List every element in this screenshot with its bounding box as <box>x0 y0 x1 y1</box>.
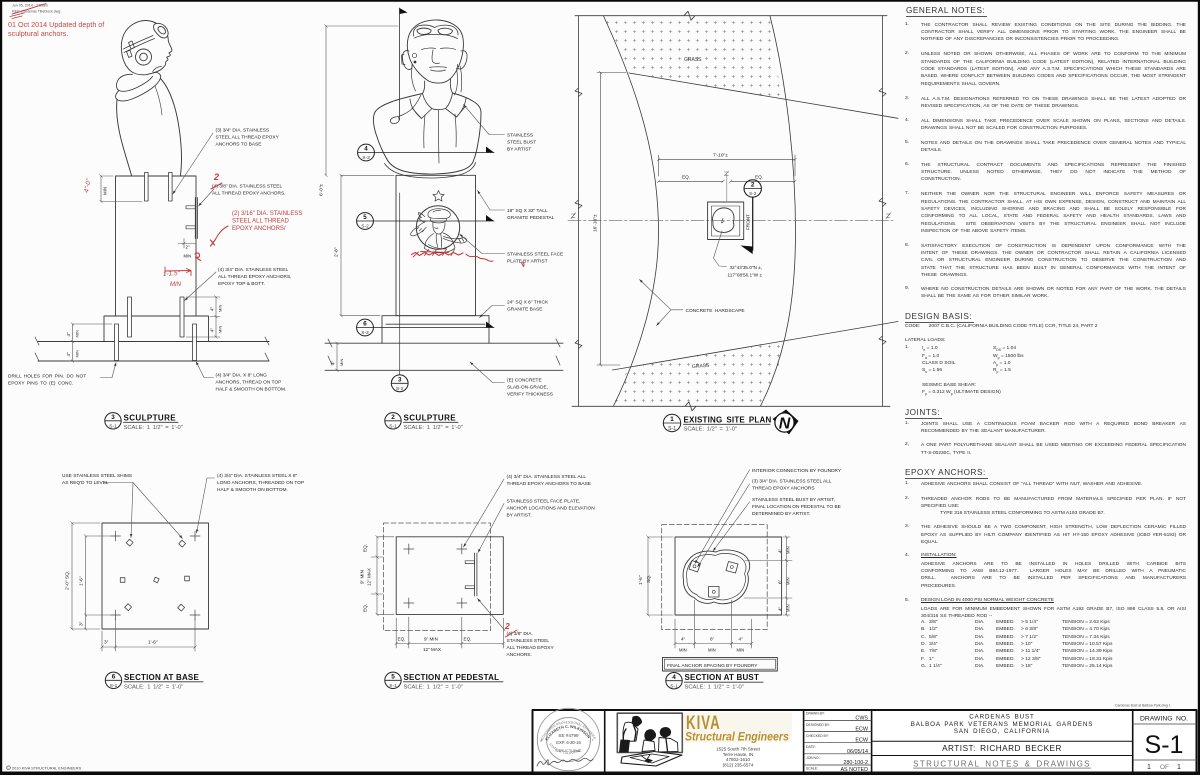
svg-text:EQ.: EQ. <box>755 175 763 180</box>
svg-text:HALF & SMOOTH ON BOTTOM.: HALF & SMOOTH ON BOTTOM. <box>216 386 287 392</box>
svg-text:ANCHOR LOCATIONS AND ELEVATION: ANCHOR LOCATIONS AND ELEVATION <box>507 505 596 511</box>
svg-text:4": 4" <box>66 352 71 356</box>
svg-text:4": 4" <box>681 637 686 642</box>
svg-text:VERIFY THICKNESS: VERIFY THICKNESS <box>507 391 553 397</box>
svg-text:(E) CONCRETE: (E) CONCRETE <box>507 377 542 383</box>
svg-text:OF: OF <box>1160 764 1169 771</box>
svg-text:2010 KIVA STRUCTURAL ENGINE: 2010 KIVA STRUCTURAL ENGINEERS <box>12 765 82 770</box>
svg-text:18" SQ X 32" TALL: 18" SQ X 32" TALL <box>507 208 548 214</box>
svg-text:4: 4 <box>364 146 368 153</box>
svg-text:6": 6" <box>778 579 783 584</box>
svg-text:STRUCTURAL NOTES & DRAWINGS: STRUCTURAL NOTES & DRAWINGS <box>913 760 1091 769</box>
svg-text:sculptural anchors.: sculptural anchors. <box>8 29 68 38</box>
svg-text:MIN: MIN <box>786 577 791 585</box>
svg-text:S-1: S-1 <box>389 424 397 430</box>
svg-text:4": 4" <box>331 361 336 365</box>
svg-text:DESIGNED BY:: DESIGNED BY: <box>806 723 830 727</box>
svg-text:AS NOTED: AS NOTED <box>840 767 868 773</box>
svg-text:GRASS: GRASS <box>684 57 702 63</box>
svg-text:STAINLESS STEEL BUST BY ARTIST: STAINLESS STEEL BUST BY ARTIST, <box>752 497 835 503</box>
svg-text:S-2: S-2 <box>361 224 369 230</box>
svg-text:S-1: S-1 <box>668 426 676 432</box>
svg-text:ANCHORS TO BASE: ANCHORS TO BASE <box>216 142 262 148</box>
svg-text:6'-0"±: 6'-0"± <box>319 183 325 196</box>
svg-text:S-1: S-1 <box>109 424 117 430</box>
svg-text:EPOXY TOP & BOTT.: EPOXY TOP & BOTT. <box>218 281 265 287</box>
svg-text:S-2: S-2 <box>362 155 370 161</box>
svg-text:(4) 3/4" DIA. STAINLESS STEEL: (4) 3/4" DIA. STAINLESS STEEL X 8" <box>217 473 297 479</box>
svg-text:MIN: MIN <box>339 359 344 366</box>
svg-text:INTERIOR CONNECTION BY FOUNDRY: INTERIOR CONNECTION BY FOUNDRY <box>752 468 842 474</box>
svg-text:BY ARTIST.: BY ARTIST. <box>507 512 532 518</box>
svg-text:7'-10"±: 7'-10"± <box>713 153 728 159</box>
svg-text:S-2: S-2 <box>396 386 404 392</box>
svg-text:STAINLESS: STAINLESS <box>507 132 533 138</box>
svg-text:4": 4" <box>210 307 215 311</box>
svg-text:MIN: MIN <box>103 187 108 195</box>
svg-text:USE STAINLESS STEEL SHIMS: USE STAINLESS STEEL SHIMS <box>62 473 132 479</box>
svg-text:4": 4" <box>778 548 783 553</box>
svg-text:CWS: CWS <box>855 715 868 721</box>
svg-text:9" MIN: 9" MIN <box>360 570 365 584</box>
svg-text:BALBOA PARK VETERANS MEMORI: BALBOA PARK VETERANS MEMORIAL GARDENS <box>911 721 1094 728</box>
svg-text:9" MIN: 9" MIN <box>424 637 438 642</box>
svg-text:(4) 3/4" DIA. X 8" LONG: (4) 3/4" DIA. X 8" LONG <box>216 372 268 378</box>
svg-text:SECTION AT PEDESTAL: SECTION AT PEDESTAL <box>404 673 500 682</box>
svg-text:LONG ANCHORS, THREADED ON TOP: LONG ANCHORS, THREADED ON TOP <box>217 480 304 486</box>
svg-text:(2) 3/16" DIA. STAINLESS: (2) 3/16" DIA. STAINLESS <box>232 211 302 217</box>
svg-text:32°43'35.0"N ±,: 32°43'35.0"N ±, <box>730 265 763 270</box>
svg-text:3: 3 <box>111 414 115 421</box>
svg-text:4: 4 <box>672 674 676 681</box>
svg-text:STAINLESS STEEL: STAINLESS STEEL <box>507 638 550 644</box>
svg-text:6": 6" <box>710 637 715 642</box>
svg-text:STAINLESS STEEL FACE PLATE,: STAINLESS STEEL FACE PLATE, <box>507 498 581 504</box>
svg-text:SCALE: 1 1/2" = 1'-0": SCALE: 1 1/2" = 1'-0" <box>124 684 183 690</box>
svg-text:1: 1 <box>1147 764 1151 771</box>
svg-text:DETERMINED BY ARTIST.: DETERMINED BY ARTIST. <box>752 511 810 517</box>
svg-text:2'-0" SQ.: 2'-0" SQ. <box>65 571 71 590</box>
svg-text:(4) 3/4" DIA. STAINLESS STEEL: (4) 3/4" DIA. STAINLESS STEEL ALL <box>507 474 587 480</box>
svg-text:EXISTING SITE PLAN: EXISTING SITE PLAN <box>684 416 772 425</box>
svg-text:S-2: S-2 <box>749 191 757 196</box>
svg-text:ALL THREAD EPOXY ANCHORS,: ALL THREAD EPOXY ANCHORS, <box>218 274 292 280</box>
svg-text:MIN: MIN <box>708 647 716 652</box>
svg-text:(4) 3/4" DIA. STAINLESS STEEL: (4) 3/4" DIA. STAINLESS STEEL <box>218 267 288 273</box>
svg-text:EQ.: EQ. <box>398 637 406 642</box>
svg-text:1'-6": 1'-6" <box>638 575 644 585</box>
svg-text:1: 1 <box>670 416 674 423</box>
svg-text:4"-0": 4"-0" <box>83 178 93 194</box>
svg-text:GRANITE PEDESTAL: GRANITE PEDESTAL <box>507 215 555 221</box>
svg-text:MIN: MIN <box>75 330 80 337</box>
svg-text:ARTIST: RICHARD BECKER: ARTIST: RICHARD BECKER <box>942 744 1062 753</box>
svg-text:S-2: S-2 <box>361 330 369 336</box>
svg-text:MIN: MIN <box>184 254 192 259</box>
svg-text:2: 2 <box>213 172 219 182</box>
svg-text:STEEL ALL THREAD: STEEL ALL THREAD <box>232 219 289 225</box>
svg-text:FRONT: FRONT <box>746 214 751 230</box>
svg-text:EQ.: EQ. <box>363 544 368 552</box>
svg-text:SE #4799: SE #4799 <box>558 733 579 738</box>
svg-text:MIN: MIN <box>75 350 80 357</box>
svg-text:SAN DIEGO, CALIFORNIA: SAN DIEGO, CALIFORNIA <box>954 728 1050 735</box>
svg-text:DRAWN BY:: DRAWN BY: <box>806 712 825 716</box>
svg-text:STAINLESS STEEL FACE: STAINLESS STEEL FACE <box>507 251 563 257</box>
svg-text:DRILL HOLES FOR PIN. DO NOT: DRILL HOLES FOR PIN. DO NOT <box>8 373 86 379</box>
svg-text:CONCRETE HARDSCAPE: CONCRETE HARDSCAPE <box>686 308 745 314</box>
svg-text:STRUCTURAL: STRUCTURAL <box>555 748 582 753</box>
svg-text:STEEL BUST: STEEL BUST <box>507 139 536 145</box>
svg-text:3": 3" <box>104 640 109 646</box>
svg-text:EQ.: EQ. <box>363 604 368 612</box>
svg-text:SCALE: 1 1/2" = 1'-0": SCALE: 1 1/2" = 1'-0" <box>685 685 744 691</box>
svg-text:FINAL ANCHOR SPACING BY FO: FINAL ANCHOR SPACING BY FOUNDRY <box>667 663 758 669</box>
svg-text:EPOXY ANCHORS/: EPOXY ANCHORS/ <box>232 226 286 232</box>
svg-text:MIN: MIN <box>170 282 182 288</box>
svg-text:4": 4" <box>210 328 215 332</box>
svg-text:ALL THREAD EPOXY ANCHORS.: ALL THREAD EPOXY ANCHORS. <box>212 190 286 196</box>
svg-text:S-1: S-1 <box>670 684 678 690</box>
svg-text:280-100-2: 280-100-2 <box>843 760 868 766</box>
svg-text:1'-6": 1'-6" <box>148 640 158 646</box>
svg-text:3": 3" <box>79 621 85 626</box>
svg-text:BY ARTIST: BY ARTIST <box>507 146 531 152</box>
svg-text:MIN: MIN <box>679 647 687 652</box>
svg-text:ECW: ECW <box>855 738 868 744</box>
svg-text:EXP. 6-30-16: EXP. 6-30-16 <box>556 740 581 745</box>
svg-text:24" SQ X 6" THICK: 24" SQ X 6" THICK <box>507 299 549 305</box>
svg-text:MIN: MIN <box>786 546 791 554</box>
svg-text:HALF & SMOOTH ON BOTTOM.: HALF & SMOOTH ON BOTTOM. <box>217 487 288 493</box>
svg-text:6: 6 <box>363 321 367 328</box>
svg-text:STEEL ALL THREAD EPOXY: STEEL ALL THREAD EPOXY <box>216 135 280 141</box>
svg-text:SCALE:: SCALE: <box>806 767 818 771</box>
svg-text:EPOXY PINS TO (E) CONC.: EPOXY PINS TO (E) CONC. <box>8 380 73 386</box>
svg-text:SCALE: 1 1/2" = 1'-0": SCALE: 1 1/2" = 1'-0" <box>404 425 463 431</box>
svg-text:EQ.: EQ. <box>682 175 690 180</box>
svg-text:(3) 3/4" DIA. STAINLESS STEEL: (3) 3/4" DIA. STAINLESS STEEL ALL <box>752 478 832 484</box>
svg-text:GRANITE BASE: GRANITE BASE <box>507 306 542 312</box>
svg-text:SECTION AT BASE: SECTION AT BASE <box>124 673 199 682</box>
svg-text:JOB NO.:: JOB NO.: <box>806 756 821 760</box>
svg-text:5: 5 <box>363 214 367 221</box>
svg-text:ANCHORS.: ANCHORS. <box>507 652 532 658</box>
svg-text:Structural Engineers: Structural Engineers <box>685 731 789 744</box>
svg-text:MIN: MIN <box>218 326 223 333</box>
svg-text:SCULPTURE: SCULPTURE <box>404 413 457 422</box>
svg-text:2: 2 <box>391 414 395 421</box>
svg-text:(3) 3/4" DIA. STAINLESS: (3) 3/4" DIA. STAINLESS <box>216 128 270 134</box>
svg-text:MIN: MIN <box>786 604 791 612</box>
svg-text:6: 6 <box>112 674 116 681</box>
svg-text:(812) 235-6574: (812) 235-6574 <box>723 762 754 767</box>
svg-text:16'-10"±: 16'-10"± <box>593 214 599 232</box>
svg-text:ECW: ECW <box>855 727 868 733</box>
svg-text:EQ.: EQ. <box>464 637 472 642</box>
svg-text:1: 1 <box>1177 764 1181 771</box>
svg-text:Cardenas Bust at Balboa Park.d: Cardenas Bust at Balboa Park.dwg 1 <box>1115 704 1171 708</box>
svg-text:06/05/14: 06/05/14 <box>847 749 868 755</box>
svg-text:2: 2 <box>751 182 755 189</box>
svg-text:2": 2" <box>186 245 190 250</box>
svg-text:4": 4" <box>66 332 71 336</box>
svg-text:5: 5 <box>391 674 395 681</box>
svg-text:4": 4" <box>739 637 744 642</box>
svg-text:ANCHORS, THREAD ON TOP: ANCHORS, THREAD ON TOP <box>216 379 282 385</box>
svg-text:GRASS: GRASS <box>692 363 711 370</box>
svg-text:SCALE: 1 1/2" = 1'-0": SCALE: 1 1/2" = 1'-0" <box>124 425 183 431</box>
svg-text:CHECKED BY:: CHECKED BY: <box>806 734 829 738</box>
svg-text:SQ.: SQ. <box>646 575 652 583</box>
svg-text:THREAD EPOXY ANCHORS TO BASE: THREAD EPOXY ANCHORS TO BASE <box>507 481 592 487</box>
svg-text:SECTION AT BUST: SECTION AT BUST <box>685 673 760 682</box>
svg-text:Jun 05, 2014 - 7:55am: Jun 05, 2014 - 7:55am <box>12 4 48 8</box>
svg-text:THREAD EPOXY ANCHORS: THREAD EPOXY ANCHORS <box>752 485 815 491</box>
svg-text:SCALE: 1/2" = 1'-0": SCALE: 1/2" = 1'-0" <box>684 427 738 433</box>
svg-text:AS REQ'D TO LEVEL: AS REQ'D TO LEVEL <box>62 480 109 486</box>
svg-text:12" MAX: 12" MAX <box>367 568 372 586</box>
svg-text:MIN: MIN <box>737 647 745 652</box>
svg-text:2'-8": 2'-8" <box>334 247 340 257</box>
svg-text:ALL THREAD EPOXY: ALL THREAD EPOXY <box>507 645 555 651</box>
svg-text:S-1: S-1 <box>110 683 118 689</box>
svg-text:FINAL LOCATION ON PEDESTAL TO: FINAL LOCATION ON PEDESTAL TO BE <box>752 504 841 510</box>
svg-text:S-1: S-1 <box>389 683 397 689</box>
svg-text:CARDENAS BUST: CARDENAS BUST <box>969 714 1035 721</box>
svg-text:PLATE BY ARTIST: PLATE BY ARTIST <box>507 258 548 264</box>
svg-text:SLAB-ON-GRADE,: SLAB-ON-GRADE, <box>507 384 548 390</box>
svg-text:1'-6": 1'-6" <box>79 576 85 586</box>
svg-text:S-1: S-1 <box>1145 731 1184 759</box>
svg-text:3: 3 <box>398 377 402 384</box>
svg-text:DRAWING NO.: DRAWING NO. <box>1140 715 1188 722</box>
svg-text:DATE:: DATE: <box>806 745 816 749</box>
svg-text:MIN: MIN <box>218 305 223 312</box>
svg-text:SCALE: 1 1/2" = 1'-0": SCALE: 1 1/2" = 1'-0" <box>404 684 463 690</box>
svg-text:12" MAX: 12" MAX <box>423 647 441 652</box>
svg-text:2: 2 <box>504 621 510 631</box>
svg-text:4": 4" <box>778 606 783 611</box>
svg-text:N: N <box>779 415 791 432</box>
svg-text:(4) 3/8" DIA. STAINLESS STEEL: (4) 3/8" DIA. STAINLESS STEEL <box>212 183 282 189</box>
svg-text:117°08'56.1"W ±: 117°08'56.1"W ± <box>728 273 763 278</box>
svg-text:1-1.5": 1-1.5" <box>163 270 181 278</box>
svg-text:SCULPTURE: SCULPTURE <box>124 413 177 422</box>
